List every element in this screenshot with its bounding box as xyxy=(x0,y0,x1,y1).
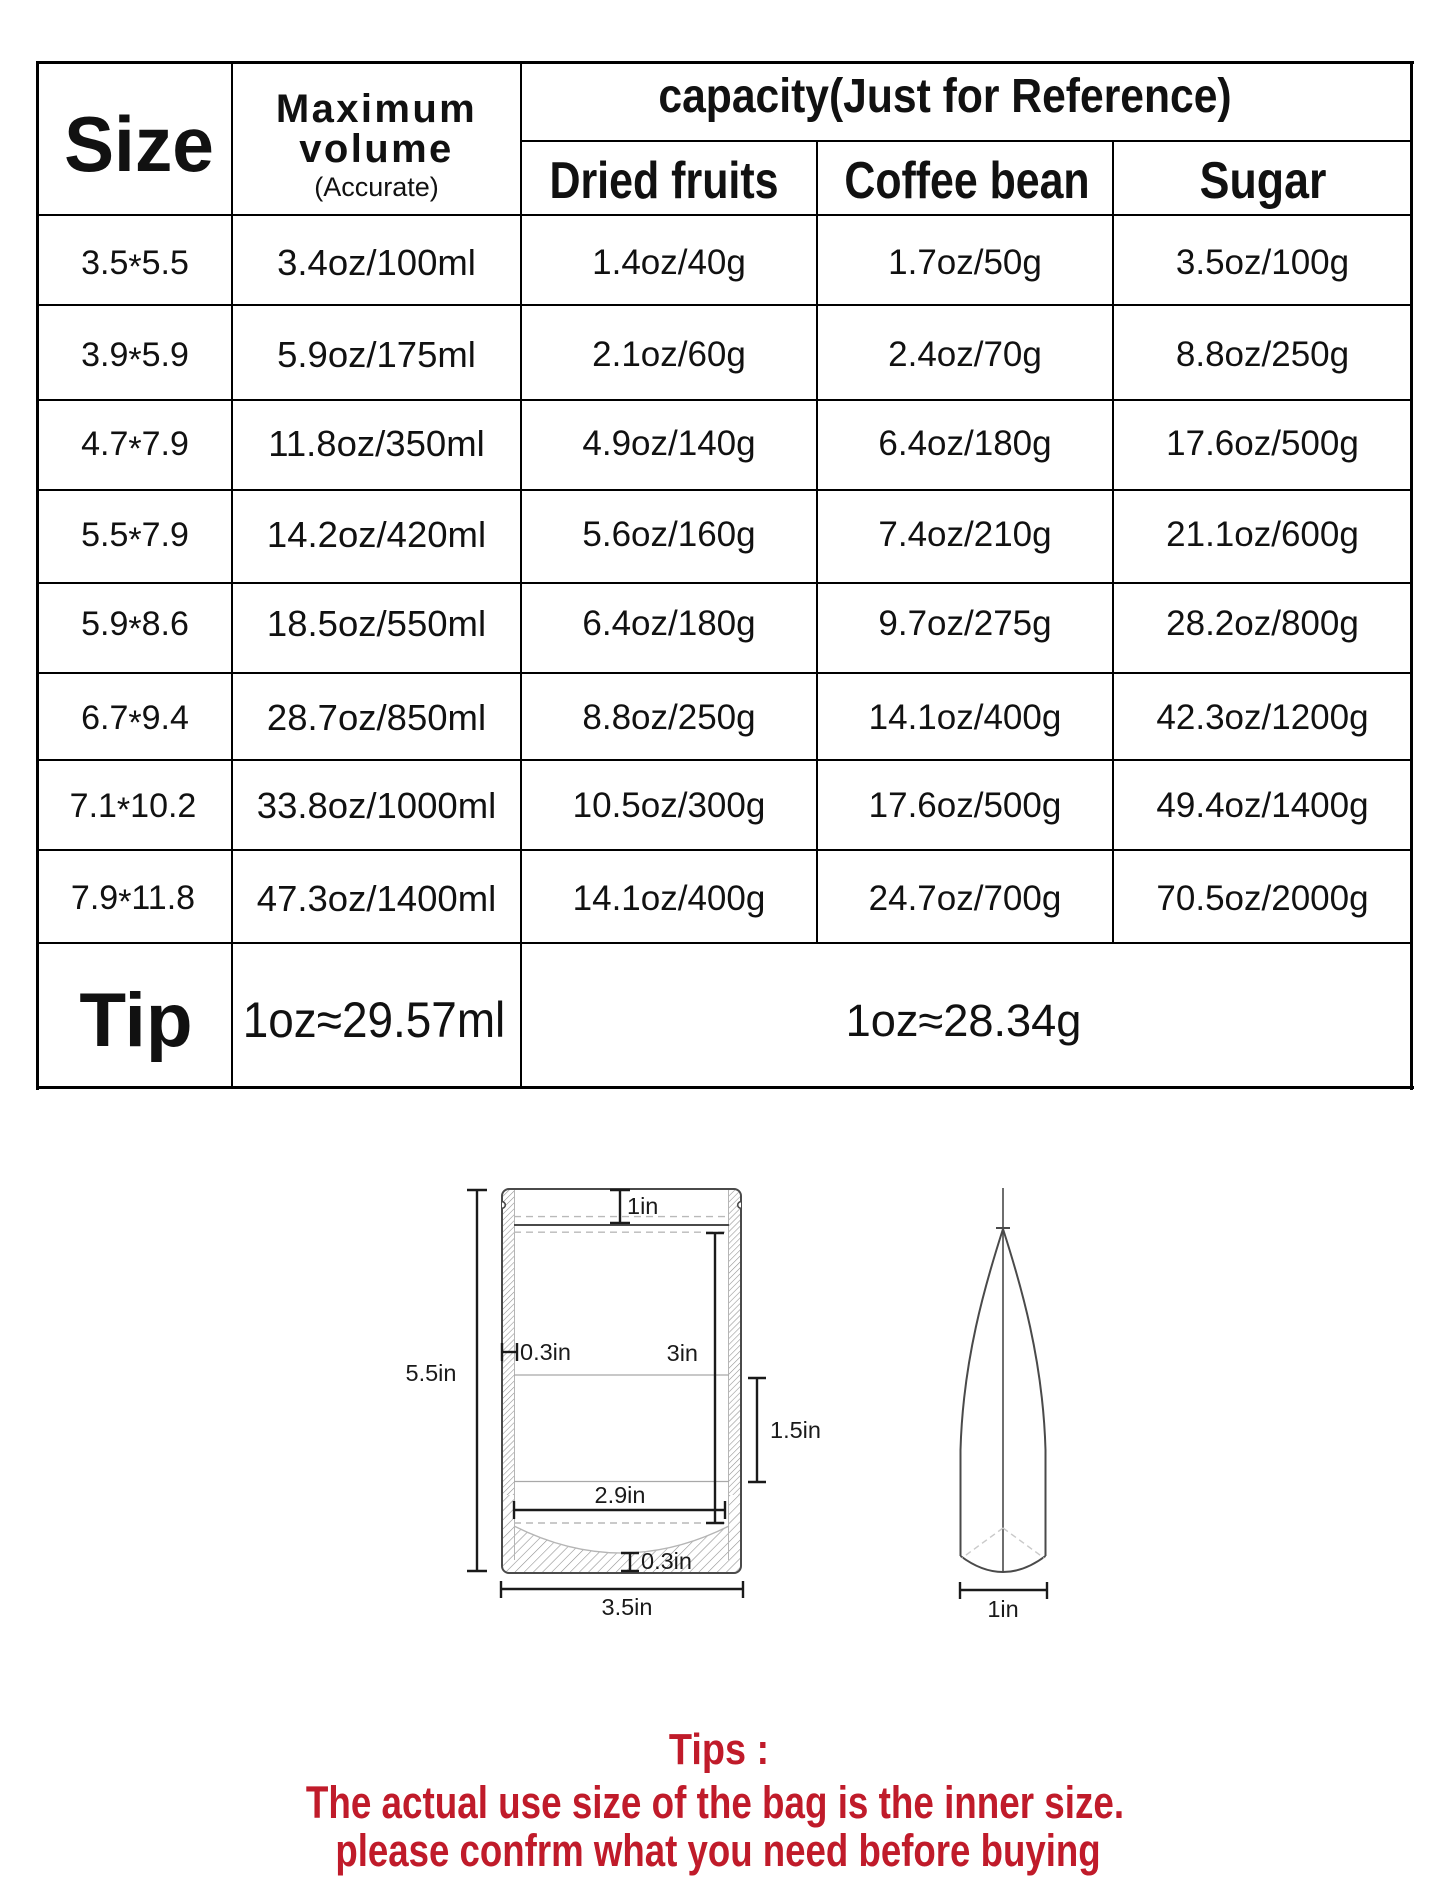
svg-text:0.3in: 0.3in xyxy=(641,1548,692,1574)
svg-text:1.5in: 1.5in xyxy=(770,1417,821,1443)
svg-text:3.5in: 3.5in xyxy=(602,1594,653,1620)
svg-text:5.5in: 5.5in xyxy=(406,1360,457,1386)
svg-text:3in: 3in xyxy=(667,1340,698,1366)
svg-text:2.9in: 2.9in xyxy=(595,1482,646,1508)
svg-text:1in: 1in xyxy=(627,1193,658,1219)
svg-text:1in: 1in xyxy=(987,1596,1018,1622)
svg-text:0.3in: 0.3in xyxy=(520,1339,571,1365)
